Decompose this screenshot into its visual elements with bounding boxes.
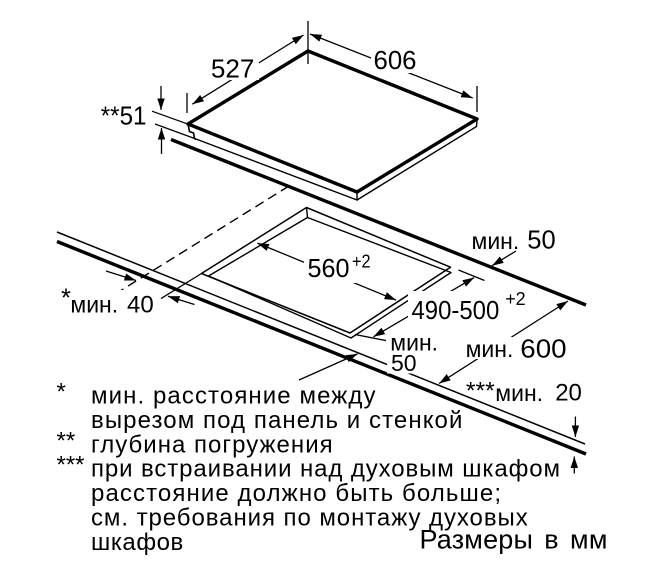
svg-text:при встраивании над духовым шк: при встраивании над духовым шкафом	[91, 456, 560, 483]
svg-text:40: 40	[127, 291, 154, 318]
svg-text:+2: +2	[352, 252, 371, 272]
svg-text:глубина погружения: глубина погружения	[91, 431, 333, 458]
svg-text:шкафов: шкафов	[91, 529, 183, 556]
svg-text:расстояние должно быть больше;: расстояние должно быть больше;	[91, 480, 501, 507]
svg-text:мин.: мин.	[70, 291, 118, 317]
svg-text:527: 527	[211, 55, 255, 83]
svg-text:606: 606	[374, 47, 417, 75]
svg-text:20: 20	[555, 379, 582, 406]
svg-text:50: 50	[527, 227, 555, 255]
svg-text:600: 600	[520, 336, 566, 364]
svg-text:560: 560	[308, 255, 350, 283]
svg-text:***: ***	[57, 452, 85, 479]
svg-text:*: *	[57, 379, 66, 406]
svg-text:**51: **51	[101, 103, 147, 131]
svg-text:***: ***	[466, 378, 495, 405]
svg-text:**: **	[57, 427, 76, 454]
svg-text:Размеры в мм: Размеры в мм	[420, 525, 608, 555]
svg-text:вырезом под панель и стенкой: вырезом под панель и стенкой	[91, 407, 462, 434]
svg-text:мин.: мин.	[466, 336, 514, 362]
svg-text:мин.: мин.	[495, 380, 543, 406]
svg-text:50: 50	[391, 350, 417, 376]
svg-text:490-500: 490-500	[412, 297, 500, 325]
svg-text:мин.: мин.	[472, 228, 520, 254]
svg-text:+2: +2	[505, 289, 526, 309]
